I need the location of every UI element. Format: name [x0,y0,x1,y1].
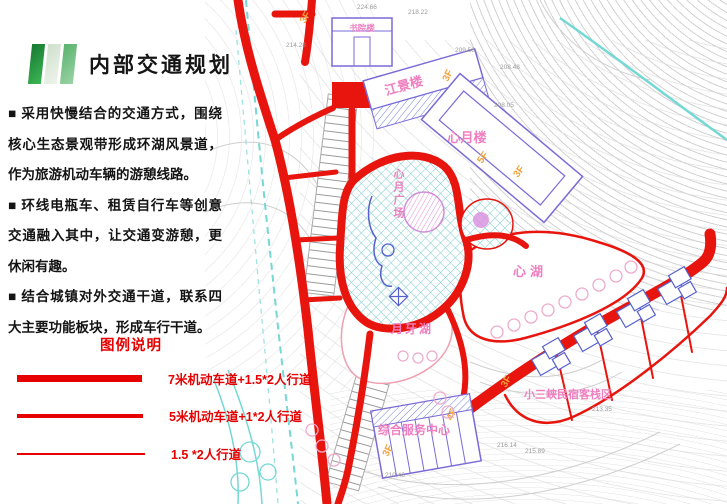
svg-text:209.58: 209.58 [455,47,475,54]
svg-text:213.35: 213.35 [592,406,612,413]
svg-text:215.89: 215.89 [525,448,545,455]
legend-label-footpath: 1.5 *2人行道 [171,444,241,463]
title-row: 内部交通规划 [30,44,233,84]
svg-text:224.66: 224.66 [357,4,377,11]
stream-bottom-left-2 [228,370,262,504]
legend-row-footpath: 1.5 *2人行道 [17,444,241,463]
legend-label-5m: 5米机动车道+1*2人行道 [169,406,302,425]
stream-bottom-left [214,380,238,504]
legend-line-5m [17,414,143,418]
legend-title: 图例说明 [0,334,262,355]
cross-road-3 [303,298,340,300]
page-title: 内部交通规划 [89,49,233,79]
tree-cyan [260,464,276,480]
road-north-entry [305,0,312,62]
svg-text:216.14: 216.14 [497,442,517,449]
svg-text:214.28: 214.28 [286,42,306,49]
plaza-stage-circle [404,192,444,232]
green-bars-icon [28,44,77,84]
building-label-xinyuelou: 心月楼 [447,130,486,145]
central-plaza [340,156,469,329]
building-label-shuyuanlou: 书院楼 [349,23,375,33]
legend-row-5m: 5米机动车道+1*2人行道 [17,406,302,425]
tree-cyan [231,473,249,491]
svg-text:218.22: 218.22 [408,9,428,16]
legend-line-footpath [17,453,145,455]
bullet-list: ■ 采用快慢结合的交通方式，围绕核心生态景观带形成环湖风景道，作为旅游机动车辆的… [8,99,222,343]
stream-top-right [560,18,727,140]
bullet-item: ■ 环线电瓶车、租赁自行车等创意交通融入其中，让交通变游憩，更休闲有趣。 [8,191,222,283]
legend-line-7m [17,375,142,382]
svg-text:208.05: 208.05 [494,102,514,109]
bullet-item: ■ 采用快慢结合的交通方式，围绕核心生态景观带形成环湖风景道，作为旅游机动车辆的… [8,99,222,191]
tree-cyan [240,442,260,462]
svg-text:210.46: 210.46 [385,472,405,479]
area-label-homestay: 小三峡民宿客栈区 [523,387,612,401]
lake-label-yueyahu: 月牙湖 [390,321,433,336]
plaza-label: 心月广场 [392,168,406,220]
legend-label-7m: 7米机动车道+1.5*2人行道 [168,369,311,388]
legend-row-7m: 7米机动车道+1.5*2人行道 [17,369,311,388]
cross-road-2 [296,238,338,240]
svg-text:208.48: 208.48 [500,64,520,71]
garden-tree-violet [473,212,489,228]
slide: 书院楼 3F 江景楼 3F 心月楼 5F 3F 综合服务中心 4F 3F [0,0,727,504]
building-label-service-center: 综合服务中心 [378,422,450,437]
lake-label-xinhu: 心湖 [513,264,547,279]
